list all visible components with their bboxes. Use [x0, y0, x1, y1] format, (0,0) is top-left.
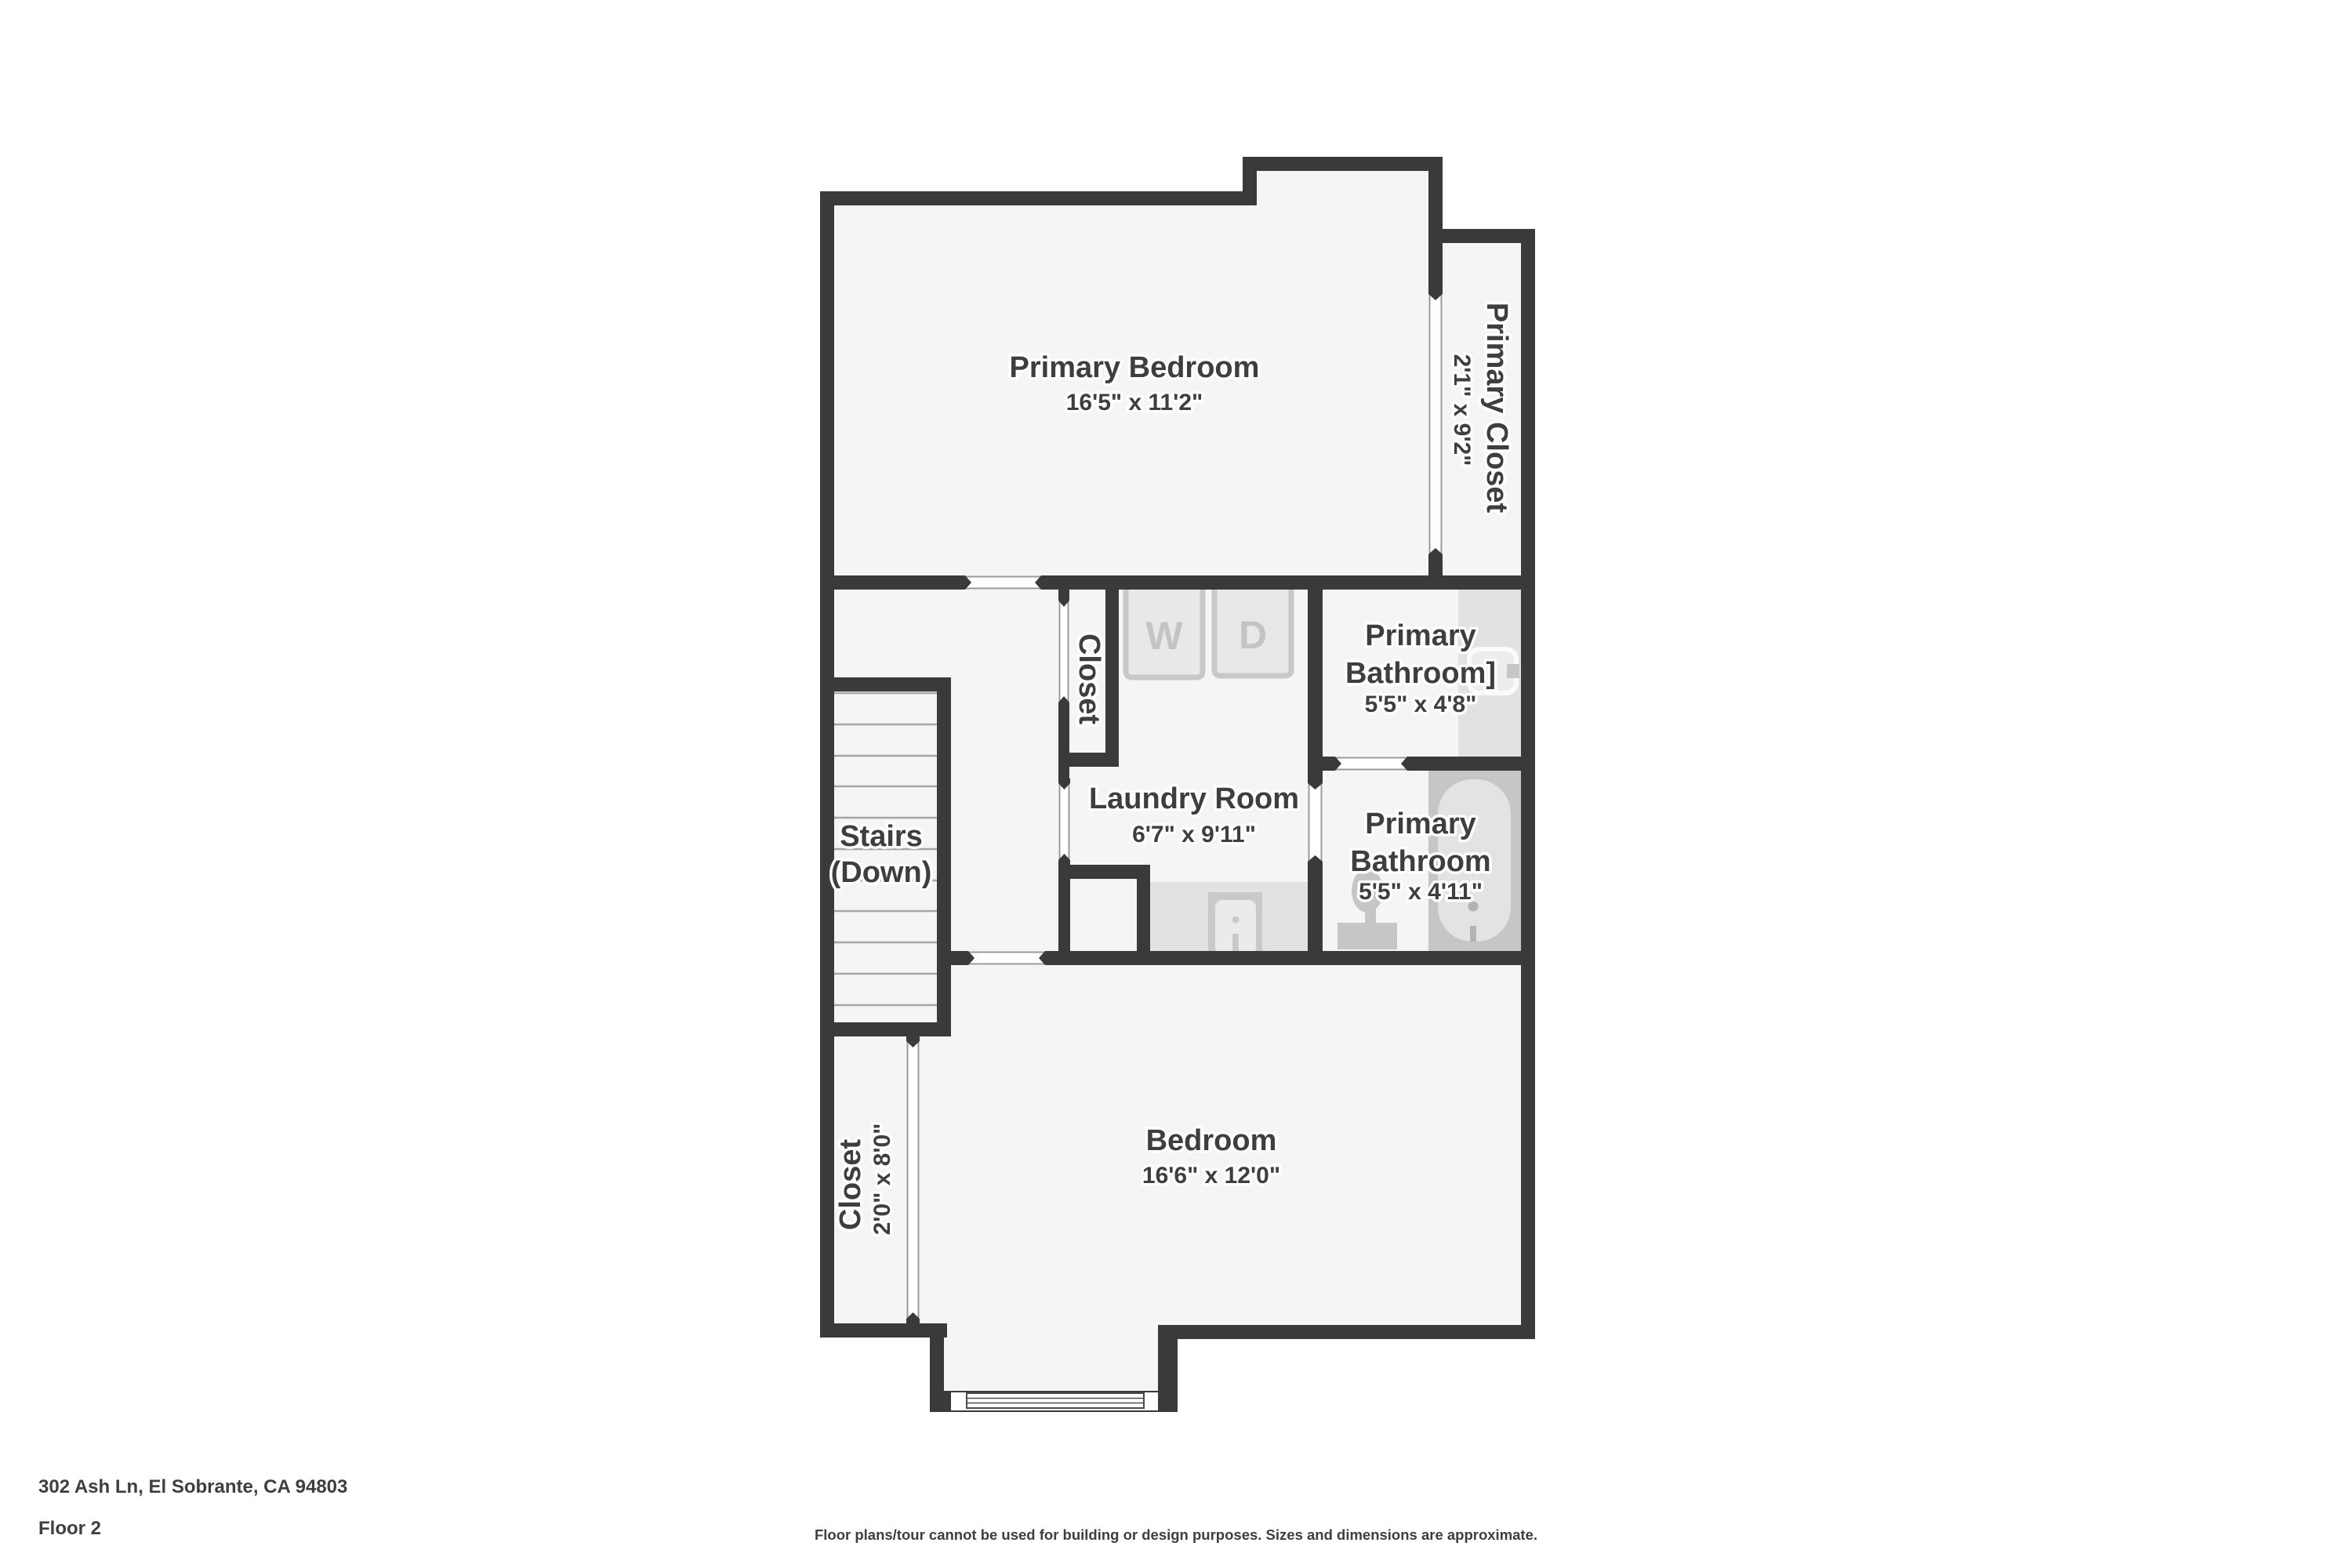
svg-text:Laundry Room: Laundry Room — [1089, 782, 1299, 815]
svg-text:302 Ash Ln, El Sobrante, CA 94: 302 Ash Ln, El Sobrante, CA 94803 — [38, 1476, 347, 1497]
svg-text:Primary: Primary — [1365, 808, 1476, 840]
svg-text:Primary Bedroom: Primary Bedroom — [1010, 351, 1260, 384]
svg-text:2'1" x 9'2": 2'1" x 9'2" — [1449, 354, 1475, 466]
svg-text:D: D — [1239, 613, 1267, 657]
svg-text:6'7" x 9'11": 6'7" x 9'11" — [1132, 822, 1256, 848]
svg-text:Bathroom]: Bathroom] — [1345, 657, 1496, 690]
svg-text:Primary: Primary — [1365, 619, 1476, 652]
svg-text:Floor plans/tour cannot be use: Floor plans/tour cannot be used for buil… — [815, 1526, 1537, 1543]
svg-text:Closet: Closet — [834, 1139, 867, 1230]
svg-text:Bathroom: Bathroom — [1350, 845, 1490, 878]
svg-text:16'6" x 12'0": 16'6" x 12'0" — [1142, 1163, 1280, 1189]
svg-text:Closet: Closet — [1073, 633, 1105, 724]
svg-text:W: W — [1145, 614, 1183, 658]
svg-text:Primary Closet: Primary Closet — [1480, 303, 1513, 514]
svg-text:Bedroom: Bedroom — [1146, 1124, 1277, 1157]
svg-text:(Down): (Down) — [831, 856, 932, 889]
svg-text:Stairs: Stairs — [840, 820, 923, 853]
svg-text:16'5" x 11'2": 16'5" x 11'2" — [1066, 390, 1203, 416]
svg-text:2'0" x 8'0": 2'0" x 8'0" — [869, 1123, 895, 1236]
svg-text:Floor 2: Floor 2 — [38, 1518, 101, 1539]
svg-text:5'5" x 4'11": 5'5" x 4'11" — [1359, 879, 1483, 905]
svg-text:5'5" x 4'8": 5'5" x 4'8" — [1365, 691, 1477, 717]
